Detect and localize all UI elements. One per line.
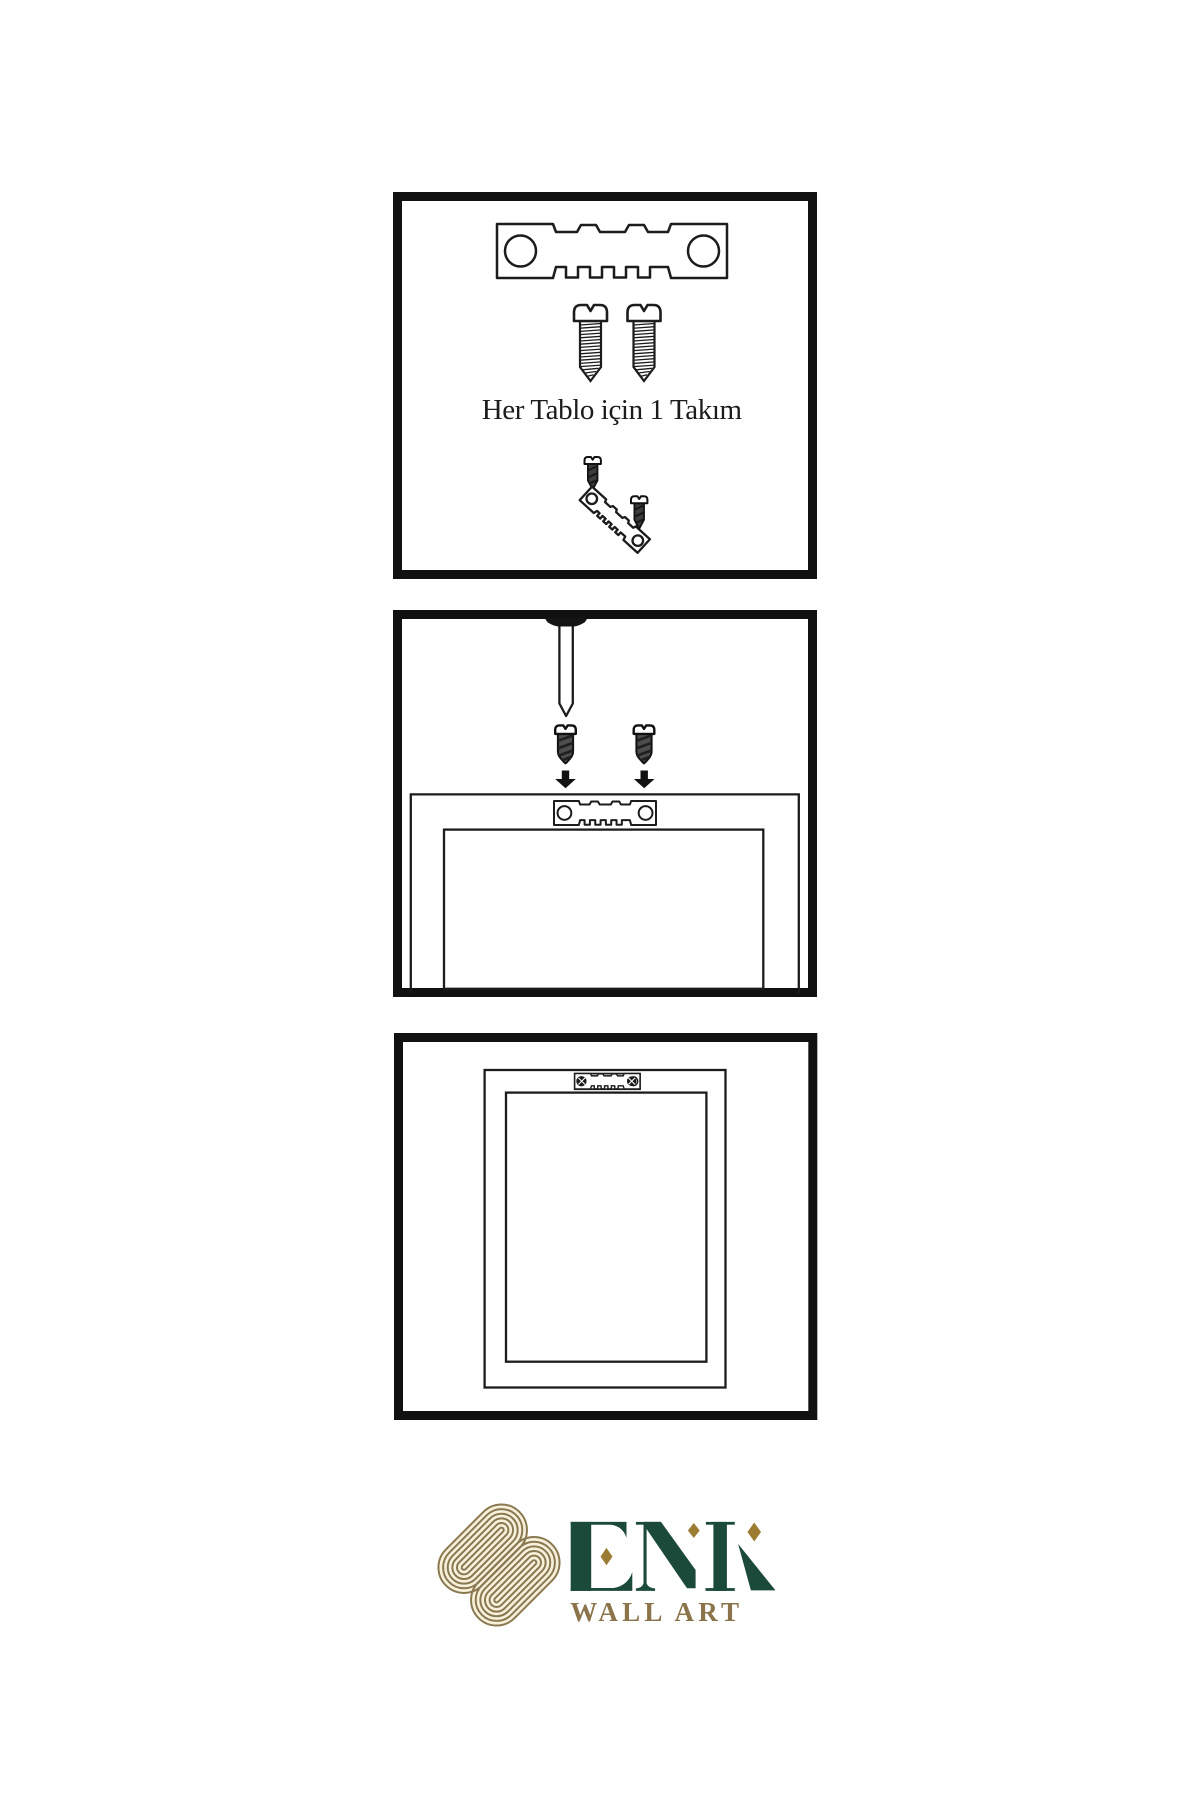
svg-text:WALL ART: WALL ART — [570, 1597, 743, 1627]
svg-text:Her Tablo için 1 Takım: Her Tablo için 1 Takım — [482, 394, 743, 426]
